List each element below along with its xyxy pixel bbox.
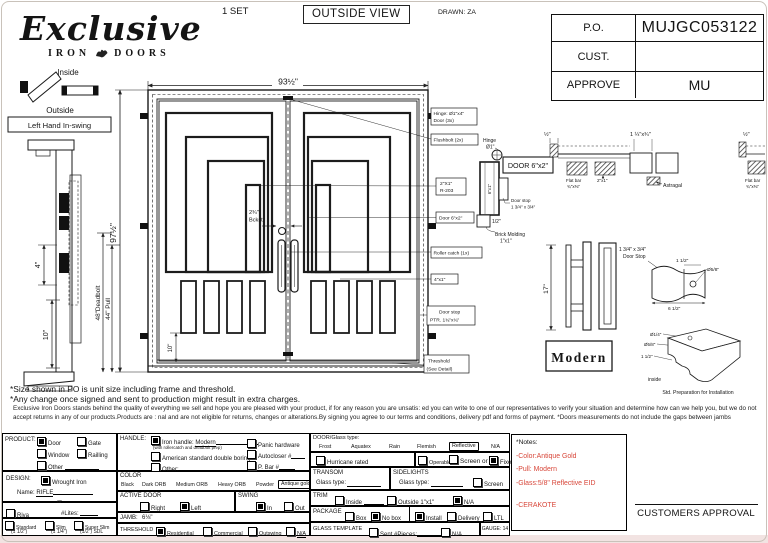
color-medium-orb[interactable]: Medium ORB (176, 482, 208, 488)
slim-sub: (1 1/4") (51, 529, 67, 535)
notes-title: *Notes: (516, 439, 622, 446)
product-label: PRODUCT: (5, 437, 36, 444)
head-half-left: ½" (544, 131, 551, 138)
gauge-label: GAUGE: 14 (482, 526, 508, 532)
design-name-label: Name: (17, 490, 35, 496)
glass-type-label: DOOR/Glass type: (313, 435, 359, 442)
handle-name-label: Modern (551, 350, 607, 365)
door-option-label: Door (48, 441, 61, 447)
sidelights-section: SIDELIGHTS Glass type: Screen (390, 467, 510, 490)
transom-glass-label: Glass type: (316, 480, 346, 487)
callout-hinge-2: Door (3x) (434, 118, 455, 124)
outside-label: Outside (46, 106, 74, 115)
active-right-checkbox[interactable] (140, 502, 149, 511)
flatbar2-label-2: ¾"x⅜" (746, 184, 759, 189)
iron-handle-sub: (with rollercatch and deadbolt prep) (153, 445, 222, 450)
color-dark-orb[interactable]: Dark ORB (142, 482, 166, 488)
hinge-jamb-block (20, 81, 28, 93)
set-count-label: 1 SET (222, 6, 248, 17)
template-pieces-field[interactable] (417, 530, 441, 537)
callout-door-size: Door 6"x2" (439, 216, 463, 222)
callout-hinge-1: Hinge: Ø1"x4" (434, 111, 465, 117)
residential-checkbox[interactable] (156, 527, 165, 536)
commercial-label: Commercial (214, 531, 243, 537)
glass-aquatex[interactable]: Aquatex (351, 444, 371, 450)
template-na-label: N/A (452, 532, 462, 538)
sidelights-glass-label: Glass type: (399, 480, 429, 487)
super-slim-sub: (1/2") SDL (80, 529, 103, 535)
package-section: PACKAGE Box No box Install Delivery LTL (310, 506, 510, 522)
backset-dim-1: 2¾" (249, 210, 259, 216)
prep-dim-1: Ø1/4" (650, 332, 662, 337)
stop-dim-3: 6 1/2" (668, 306, 681, 312)
trim-section: TRIM Inside Outside 1"x1" N/A (310, 490, 510, 506)
door-checkbox[interactable] (37, 437, 46, 446)
autocloser-label: Autocloser # (258, 454, 291, 460)
stop-label-1: 1 3/4" x 3/4" (619, 247, 646, 253)
hurricane-section: Hurricane rated (310, 452, 415, 467)
standard-sub: (1 1/2") (11, 529, 27, 535)
gauge-cell: GAUGE: 14 (480, 522, 510, 536)
commercial-checkbox[interactable] (203, 527, 212, 536)
iron-handle-checkbox[interactable] (151, 436, 160, 445)
jamb-detail: Hinge Ø1" 6"x1" Door stop 1 3/4" x 3/4" … (477, 138, 536, 245)
color-section: COLOR Black Dark ORB Medium ORB Heavy OR… (117, 471, 310, 491)
open-door-panel (28, 72, 61, 102)
stop-label-2: Door Stop (623, 254, 646, 260)
stop-dim-1: 1 1/2" (676, 258, 689, 264)
color-powder[interactable]: Powder (256, 482, 274, 488)
door-callouts: Hinge: Ø1"x4" Door (3x) Flushbolt (2x) 2… (250, 100, 482, 373)
active-door-label: ACTIVE DOOR (120, 493, 161, 500)
note-color: -Color:Antique Gold (516, 453, 622, 460)
design-name-value[interactable]: RIFLE (36, 490, 53, 497)
swing-out-checkbox[interactable] (284, 502, 293, 511)
glass-na[interactable]: N/A (491, 444, 500, 450)
railing-checkbox[interactable] (77, 449, 86, 458)
flatbar1-label-1: Flat bar (566, 178, 582, 183)
design-section: DESIGN: Wrought Iron Name: RIFLE (2, 471, 117, 502)
or-label: or (57, 499, 62, 506)
swing-section: SWING In Out (235, 491, 310, 512)
glass-selected[interactable]: Reflective (449, 442, 479, 451)
callout-roller: Roller catch (1x) (434, 251, 470, 257)
hurricane-checkbox[interactable] (316, 456, 325, 465)
jamb-hinge-label-1: Hinge (483, 138, 496, 144)
glass-frost[interactable]: Frost (319, 444, 331, 450)
active-left-checkbox[interactable] (180, 502, 189, 511)
color-label: COLOR (120, 473, 141, 480)
sidelights-label: SIDELIGHTS (393, 470, 429, 477)
package-nobox-checkbox[interactable] (371, 512, 380, 521)
width-dim-label: 93½" (278, 77, 298, 87)
profile-section: Standard (1 1/2") Slim (1 1/4") Super Sl… (2, 518, 117, 536)
glass-flemish[interactable]: Flemish (417, 444, 436, 450)
threshold-na-label: N/A (297, 531, 306, 538)
order-drawing-page: Exclusive IRON DOORS 1 SET OUTSIDE VIEW … (0, 0, 768, 543)
side-section: 4" 10" (24, 140, 81, 391)
product-other-checkbox[interactable] (37, 461, 46, 470)
head-door-label: DOOR 6"x2" (508, 161, 549, 170)
jamb-label: JAMB: (120, 515, 138, 522)
deadbolt-dim-label: 48"Deadbolt (95, 285, 102, 320)
jamb-stop-label-1: Door stop (511, 198, 531, 203)
bar2x1-label: 2"x1" (597, 178, 608, 183)
american-boring-checkbox[interactable] (151, 452, 160, 461)
residential-label: Residential (167, 531, 194, 537)
railing-option-label: Railling (88, 453, 108, 459)
drawn-by-label: DRAWN: ZA (438, 9, 476, 16)
jamb-value[interactable]: 6⅛" (142, 515, 152, 523)
fixed-checkbox[interactable] (489, 456, 498, 465)
head-section-detail: DOOR 6"x2" ½" Flat bar ¾"x⅜" 2"x1" 1 ¼"x… (503, 131, 765, 189)
glass-template-label: GLASS TEMPLATE (313, 526, 362, 533)
fine-print: Exclusive Iron Doors stands behind the q… (13, 405, 761, 422)
side-dim-4: 4" (35, 261, 42, 268)
prep-dim-2: Ø5/8" (644, 342, 656, 347)
package-box-checkbox[interactable] (345, 512, 354, 521)
po-value[interactable]: MUJGC053122 (636, 15, 763, 42)
panic-hardware-checkbox[interactable] (247, 439, 256, 448)
backset-dim-2: Bckst. (249, 218, 265, 224)
inside-label: Inside (57, 68, 79, 77)
flatbar1-label-2: ¾"x⅜" (567, 184, 580, 189)
threshold-section: THRESHOLD Residential Commercial Outswin… (117, 523, 310, 536)
prep-dim-3: 1 1/2" (641, 354, 653, 359)
callout-threshold-2: (See Detail) (427, 367, 453, 373)
lites-label: #Lites: (61, 511, 79, 517)
color-heavy-orb[interactable]: Heavy ORB (218, 482, 246, 488)
screen-checkbox[interactable] (449, 455, 458, 464)
jamb-stop-label-2: 1 3/4" x 3/4" (511, 205, 536, 210)
stop-dim-2: Ø5/8" (707, 267, 719, 273)
screen-or-label: Screen or (460, 458, 488, 465)
hurricane-label: Hurricane rated (327, 460, 368, 466)
note-line-1: *Size shown in PO is unit size including… (10, 384, 235, 394)
note-cerakote: -CERAKOTE (516, 502, 622, 509)
pbar-checkbox[interactable] (247, 461, 256, 470)
package-ltl-checkbox[interactable] (483, 512, 492, 521)
note-pull: -Pull: Modern (516, 466, 622, 473)
transom-label: TRANSOM (313, 470, 343, 477)
left-hand-inswing-label: Left Hand In-swing (28, 121, 91, 130)
head-half-right: ½" (743, 131, 750, 138)
outswing-checkbox[interactable] (248, 527, 257, 536)
callout-4x1: 4"x1" (434, 277, 446, 283)
swing-diagram: Inside Outside Left Hand In-swing (8, 68, 111, 132)
american-boring-label: American standard double boring (162, 456, 250, 462)
sidelights-glass-field[interactable] (431, 480, 463, 487)
deadbolt-cylinder (279, 228, 286, 235)
note-line-2: *Any change once signed and sent to prod… (10, 394, 300, 404)
wall-segment (62, 86, 98, 95)
package-delivery-checkbox[interactable] (447, 512, 456, 521)
color-black[interactable]: Black (121, 482, 134, 488)
jamb-profile-label: 6"x1" (487, 183, 492, 194)
trim-na-checkbox[interactable] (453, 496, 462, 505)
riva-field[interactable] (29, 511, 51, 518)
product-other-field[interactable] (65, 463, 99, 470)
pull-dim-label: 44" Pull (105, 298, 112, 320)
operable-fixed-section: Operable Screen or Fixed (415, 452, 510, 467)
glass-template-section: GLASS TEMPLATE Sent #Pieces: N/A (310, 522, 480, 536)
flatbar2-label-1: Flat bar (745, 178, 761, 183)
brick-molding-label-1: Brick Molding (495, 232, 525, 238)
threshold-prep-detail: Ø1/4" outside Ø5/8" 1 1/2" inside Std. P… (641, 329, 740, 396)
side-dim-10: 10" (43, 329, 50, 340)
callout-doorstop-1: Door stop (439, 310, 460, 316)
approval-signature-line[interactable] (635, 504, 758, 505)
threshold-na-checkbox[interactable] (286, 527, 295, 536)
trim-inside-checkbox[interactable] (335, 496, 344, 505)
prep-caption: Std. Preparation for Installation (662, 390, 733, 396)
trim-outside-checkbox[interactable] (387, 496, 396, 505)
swing-in-checkbox[interactable] (256, 502, 265, 511)
outside-view-label: OUTSIDE VIEW (303, 5, 410, 24)
transom-section: TRANSOM Glass type: (310, 467, 390, 490)
sidelights-screen-label: Screen (484, 482, 503, 488)
door-stop-detail: 1 3/4" x 3/4" Door Stop 1 1/2" Ø5/8" 6 1… (619, 247, 719, 312)
riva-checkbox[interactable] (6, 509, 15, 518)
gate-checkbox[interactable] (77, 437, 86, 446)
autocloser-field[interactable] (291, 452, 305, 459)
prep-inside-label: inside (648, 377, 661, 383)
astragal-dim: 1 ¼"x¾" (630, 132, 651, 138)
company-logo: Exclusive IRON DOORS (20, 12, 202, 59)
callout-doorstop-2: PTR. 1¾"x¾" (430, 318, 460, 324)
outswing-label: Outswing (259, 531, 281, 537)
wrought-iron-label: Wrought Iron (52, 480, 87, 486)
trim-label: TRIM (313, 493, 328, 500)
bottom-rail-dim: 10" (168, 344, 174, 353)
template-na-checkbox[interactable] (441, 528, 450, 537)
callout-flushbolt: Flushbolt (2x) (434, 138, 464, 144)
handle-section: HANDLE: Iron handle: Modern (with roller… (117, 433, 310, 471)
brick-molding-label-2: 1"x1" (500, 239, 512, 245)
approval-label: CUSTOMERS APPROVAL (628, 508, 764, 519)
pull-handle-detail: 17" Modern (543, 242, 616, 371)
wrought-iron-checkbox[interactable] (41, 476, 50, 485)
template-sent-checkbox[interactable] (369, 528, 378, 537)
panic-hardware-label: Panic hardware (258, 443, 300, 449)
door-elevation: 2¾" Bckst. 10" (140, 90, 436, 372)
jamb-half-dim: 1/2" (492, 219, 501, 225)
autocloser-checkbox[interactable] (247, 450, 256, 459)
jamb-section: JAMB: 6⅛" (117, 512, 310, 523)
customer-notes-box: *Notes: -Color:Antique Gold -Pull: Moder… (511, 434, 627, 531)
handle-label: HANDLE: (120, 436, 146, 443)
astragal-label: Astragal (663, 183, 682, 189)
active-door-section: ACTIVE DOOR Right Left (117, 491, 235, 512)
color-selected[interactable]: Antique gold (278, 480, 313, 489)
logo-script-text: Exclusive (20, 12, 202, 45)
callout-bar-code: R-203 (440, 188, 454, 194)
trim-inside-field[interactable] (364, 498, 384, 505)
transom-glass-field[interactable] (347, 480, 381, 487)
product-section: PRODUCT: Door Gate Window Railling Other (2, 433, 117, 471)
technical-drawing: Inside Outside Left Hand In-swing 4" (0, 55, 768, 400)
swing-label: SWING (238, 493, 258, 500)
po-label: P.O. (552, 15, 636, 42)
package-install-checkbox[interactable] (415, 512, 424, 521)
lites-field[interactable] (80, 509, 98, 516)
window-checkbox[interactable] (37, 449, 46, 458)
threshold-label: THRESHOLD (120, 527, 153, 533)
sidelights-screen-checkbox[interactable] (473, 478, 482, 487)
note-glass: -Glass:5/8" Reflective EID (516, 480, 622, 487)
gate-option-label: Gate (88, 441, 101, 447)
template-sent-label: Sent #Pieces: (380, 532, 417, 538)
operable-checkbox[interactable] (418, 456, 427, 465)
callout-threshold-1: Threshold (428, 359, 450, 365)
glass-type-section: DOOR/Glass type: Frost Aquatex Rain Flem… (310, 433, 510, 452)
design-label: DESIGN: (6, 476, 31, 483)
riva-section: or Riva #Lites: (2, 502, 117, 518)
window-option-label: Window (48, 453, 69, 459)
glass-rain[interactable]: Rain (389, 444, 400, 450)
package-label: PACKAGE (313, 509, 342, 516)
operable-label: Operable (429, 460, 451, 466)
jamb-hinge-label-2: Ø1" (486, 145, 495, 151)
pbar-field[interactable] (279, 463, 295, 470)
callout-bar-size: 2"X1" (440, 181, 452, 187)
handle-height-dim: 17" (543, 284, 550, 294)
